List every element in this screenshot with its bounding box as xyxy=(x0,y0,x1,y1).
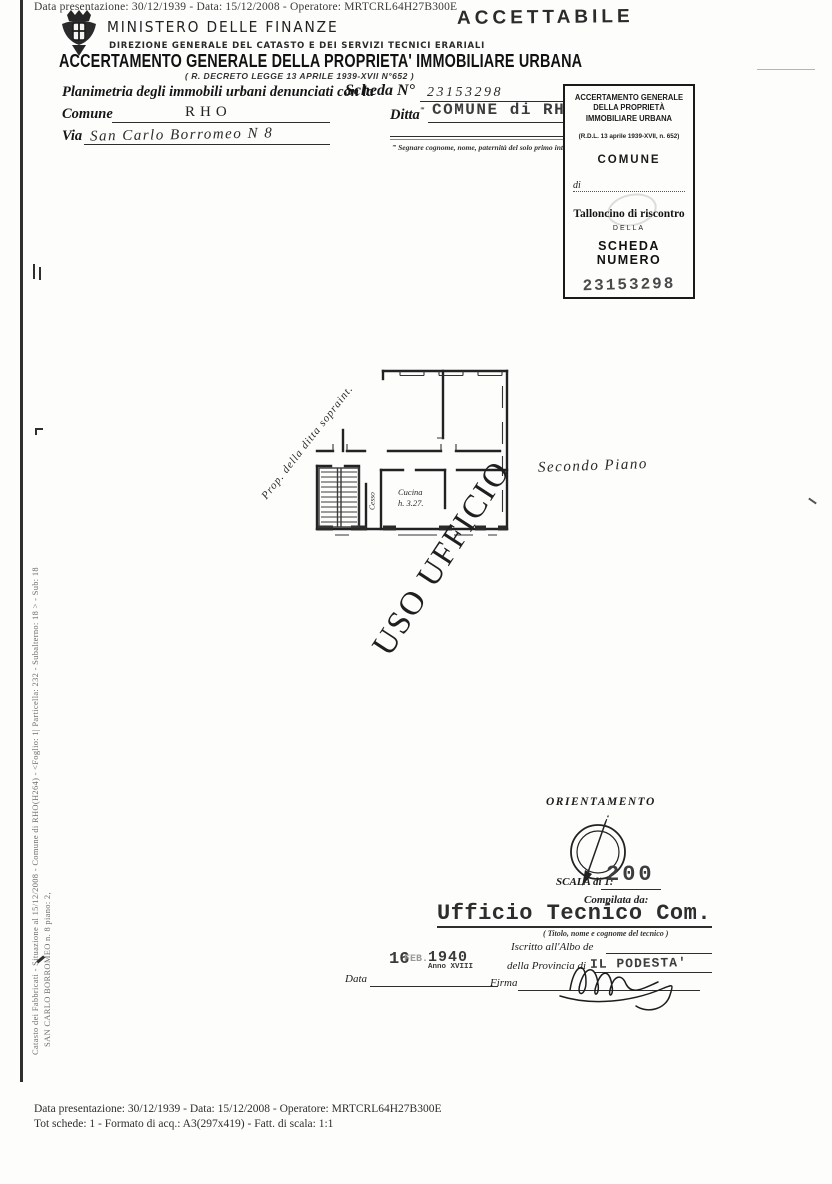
document-law-reference: ( R. DECRETO LEGGE 13 APRILE 1939-XVII N… xyxy=(185,71,414,81)
scan-edge-line xyxy=(20,0,23,1082)
scanned-document-page: Data presentazione: 30/12/1939 - Data: 1… xyxy=(0,0,832,1184)
staircase xyxy=(319,468,359,527)
date-stamp-era: Anno XVIII xyxy=(428,963,473,971)
comune-label: Comune xyxy=(62,106,113,123)
scan-artifact xyxy=(33,264,35,279)
form-rule xyxy=(428,122,565,123)
talloncino-scheda-label: SCHEDA NUMERO xyxy=(565,239,693,267)
scan-artifact xyxy=(35,428,37,435)
side-metadata-line2: SAN CARLO BORROMEO n. 8 piano: 2, xyxy=(42,862,52,1047)
talloncino-box: ACCERTAMENTO GENERALE DELLA PROPRIETÀ IM… xyxy=(563,84,695,299)
talloncino-law: (R.D.L. 13 aprile 1939-XVII, n. 652) xyxy=(565,133,693,140)
direction-subtitle: DIREZIONE GENERALE DEL CATASTO E DEI SER… xyxy=(109,41,485,51)
firma-label: Firma xyxy=(490,977,518,989)
ditta-ref-marker: ‴ xyxy=(420,106,424,115)
floor-label-handwritten: Secondo Piano xyxy=(538,456,648,477)
talloncino-comune-label: COMUNE xyxy=(565,154,693,166)
scan-metadata-footer-line1: Data presentazione: 30/12/1939 - Data: 1… xyxy=(34,1103,441,1115)
form-rule xyxy=(112,122,330,123)
talloncino-title: ACCERTAMENTO GENERALE DELLA PROPRIETÀ IM… xyxy=(568,93,690,124)
comune-value: RHO xyxy=(185,104,232,121)
scala-rule xyxy=(601,889,661,890)
tecnico-rule xyxy=(437,926,712,928)
wc-label: Cesso xyxy=(368,492,377,510)
ditta-label-text: Ditta xyxy=(390,107,420,123)
ditta-value-stamp: COMUNE di RHO xyxy=(432,101,576,119)
data-label: Data xyxy=(345,973,367,985)
kitchen-height-label: h. 3.27. xyxy=(398,498,424,508)
signature-handwriting xyxy=(552,942,717,1014)
footnote-separator xyxy=(390,139,567,140)
data-rule xyxy=(370,986,498,987)
tecnico-stamp: Ufficio Tecnico Com. xyxy=(437,901,711,926)
scala-label: SCALA di 1: xyxy=(556,876,613,888)
scan-artifact xyxy=(808,498,817,505)
talloncino-scheda-number: 23153298 xyxy=(565,274,693,295)
scan-artifact xyxy=(39,267,41,280)
tecnico-note: ( Titolo, nome e cognome del tecnico ) xyxy=(543,929,668,938)
side-metadata-line1: Catasto dei Fabbricati - Situazione al 1… xyxy=(30,585,40,1055)
accettabile-stamp: ACCETTABILE xyxy=(457,6,634,30)
scheda-label: Scheda N° xyxy=(345,82,415,100)
planimetria-label: Planimetria degli immobili urbani denunc… xyxy=(62,84,374,101)
scala-value-stamp: 200 xyxy=(606,862,655,887)
ditta-label: Ditta‴ xyxy=(390,106,424,124)
kitchen-label: Cucina xyxy=(398,487,423,497)
date-stamp-month: FEB. xyxy=(404,954,428,965)
scan-edge-line xyxy=(757,69,815,70)
talloncino-di-line: di xyxy=(573,180,685,192)
footnote-text: ‴ Segnare cognome, nome, paternità del s… xyxy=(392,143,590,152)
orientamento-label: ORIENTAMENTO xyxy=(546,796,656,808)
plan-room-labels: Cesso Cucina h. 3.27. xyxy=(368,487,424,510)
form-rule xyxy=(84,144,330,145)
via-label: Via xyxy=(62,128,82,145)
document-title: ACCERTAMENTO GENERALE DELLA PROPRIETA' I… xyxy=(59,51,582,72)
scan-metadata-footer-line2: Tot schede: 1 - Formato di acq.: A3(297x… xyxy=(34,1118,333,1130)
via-value-handwritten: San Carlo Borromeo N 8 xyxy=(90,125,274,145)
scheda-number-handwritten: 23153298 xyxy=(427,85,503,101)
ministry-title: MINISTERO DELLE FINANZE xyxy=(107,18,339,36)
footnote-separator xyxy=(390,136,567,137)
